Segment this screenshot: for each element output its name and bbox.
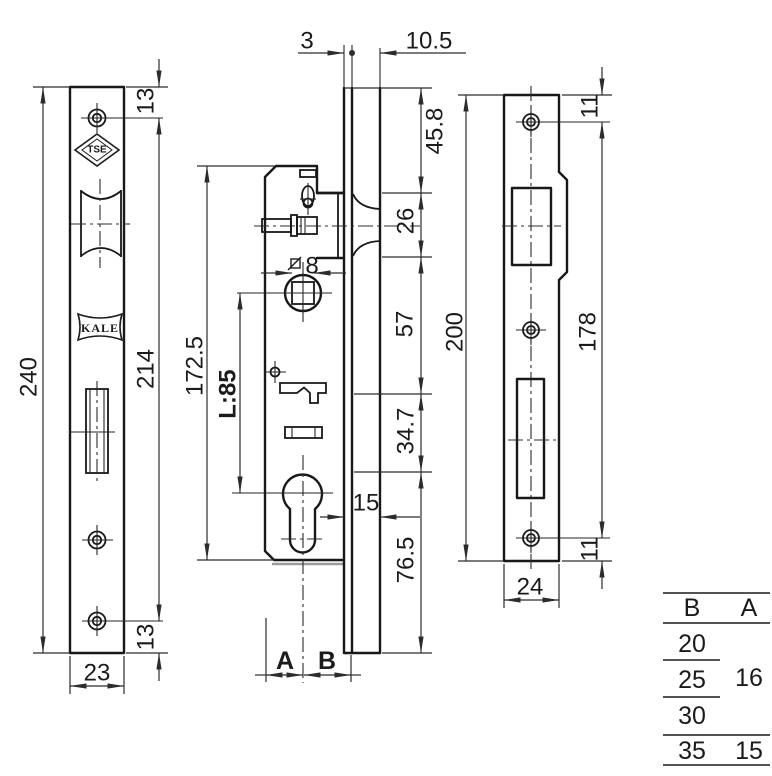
faceplate-edge <box>344 45 380 653</box>
pin-marker <box>264 361 286 383</box>
dim-offset-bottom-13: 13 <box>133 624 160 651</box>
screw-hole-middle <box>82 525 113 555</box>
table-header-a: A <box>741 594 758 622</box>
dim-section-76-5: 76.5 <box>393 537 420 584</box>
strike-screw-hole-middle <box>516 315 546 345</box>
deadbolt-slot <box>69 381 115 481</box>
dim-case-height-172-5: 172.5 <box>182 336 209 396</box>
dim-spindle-8: 8 <box>305 253 318 280</box>
dim-plate-thickness-3: 3 <box>300 28 313 55</box>
lock-technical-drawing: TSE KALE <box>0 0 772 776</box>
lock-body-view: 8 3 <box>182 28 467 684</box>
small-slot <box>285 427 322 438</box>
table-b-20: 20 <box>678 630 706 658</box>
tse-logo: TSE <box>75 134 119 166</box>
tse-logo-text: TSE <box>87 145 107 156</box>
table-header-b: B <box>684 594 701 622</box>
dim-strike-offset-top-11: 11 <box>577 94 604 119</box>
table-b-35: 35 <box>678 737 706 765</box>
dim-height-240: 240 <box>16 357 43 397</box>
faceplate-view: TSE KALE <box>16 59 169 694</box>
roller-front <box>71 179 130 268</box>
table-b-30: 30 <box>678 702 706 730</box>
dim-center-distance-L85: L:85 <box>215 369 242 418</box>
size-table: B A 20 25 30 35 16 15 <box>663 593 770 765</box>
dim-profile-depth-10-5: 10.5 <box>406 28 453 55</box>
body-dimensions: 3 10.5 45.8 26 57 34.7 76.5 172.5 <box>182 28 467 683</box>
stop-works-cutout <box>280 383 326 403</box>
table-a-16: 16 <box>735 664 763 692</box>
latch-screw <box>300 183 316 215</box>
drawing-canvas: TSE KALE <box>0 0 772 776</box>
dim-latch-26: 26 <box>393 208 420 235</box>
kale-logo: KALE <box>78 314 122 340</box>
roller-edge-top <box>353 194 380 209</box>
kale-logo-text: KALE <box>81 321 119 335</box>
dim-edge-15: 15 <box>353 490 380 517</box>
strike-plate-view: 200 11 178 11 24 <box>442 67 613 608</box>
dim-strike-offset-bottom-11: 11 <box>577 537 604 562</box>
dim-strike-height-200: 200 <box>442 312 469 352</box>
strike-outline <box>504 95 567 561</box>
table-b-25: 25 <box>678 666 706 694</box>
dim-width-23: 23 <box>84 660 111 687</box>
label-backset-a: A <box>276 647 294 675</box>
roller-edge-bottom <box>353 241 380 256</box>
table-a-15: 15 <box>735 737 763 765</box>
faceplate-outline <box>70 87 124 653</box>
dim-top-45-8: 45.8 <box>422 108 449 155</box>
dim-strike-span-178: 178 <box>575 312 602 352</box>
label-backset-b: B <box>318 647 336 675</box>
dim-offset-top-13: 13 <box>133 88 160 115</box>
dim-section-57: 57 <box>392 311 419 338</box>
square-symbol-icon <box>291 259 300 268</box>
dim-strike-width-24: 24 <box>517 574 544 601</box>
cover-screw-slot <box>300 170 316 177</box>
dim-section-34-7: 34.7 <box>393 408 420 455</box>
dim-span-214: 214 <box>133 349 160 389</box>
